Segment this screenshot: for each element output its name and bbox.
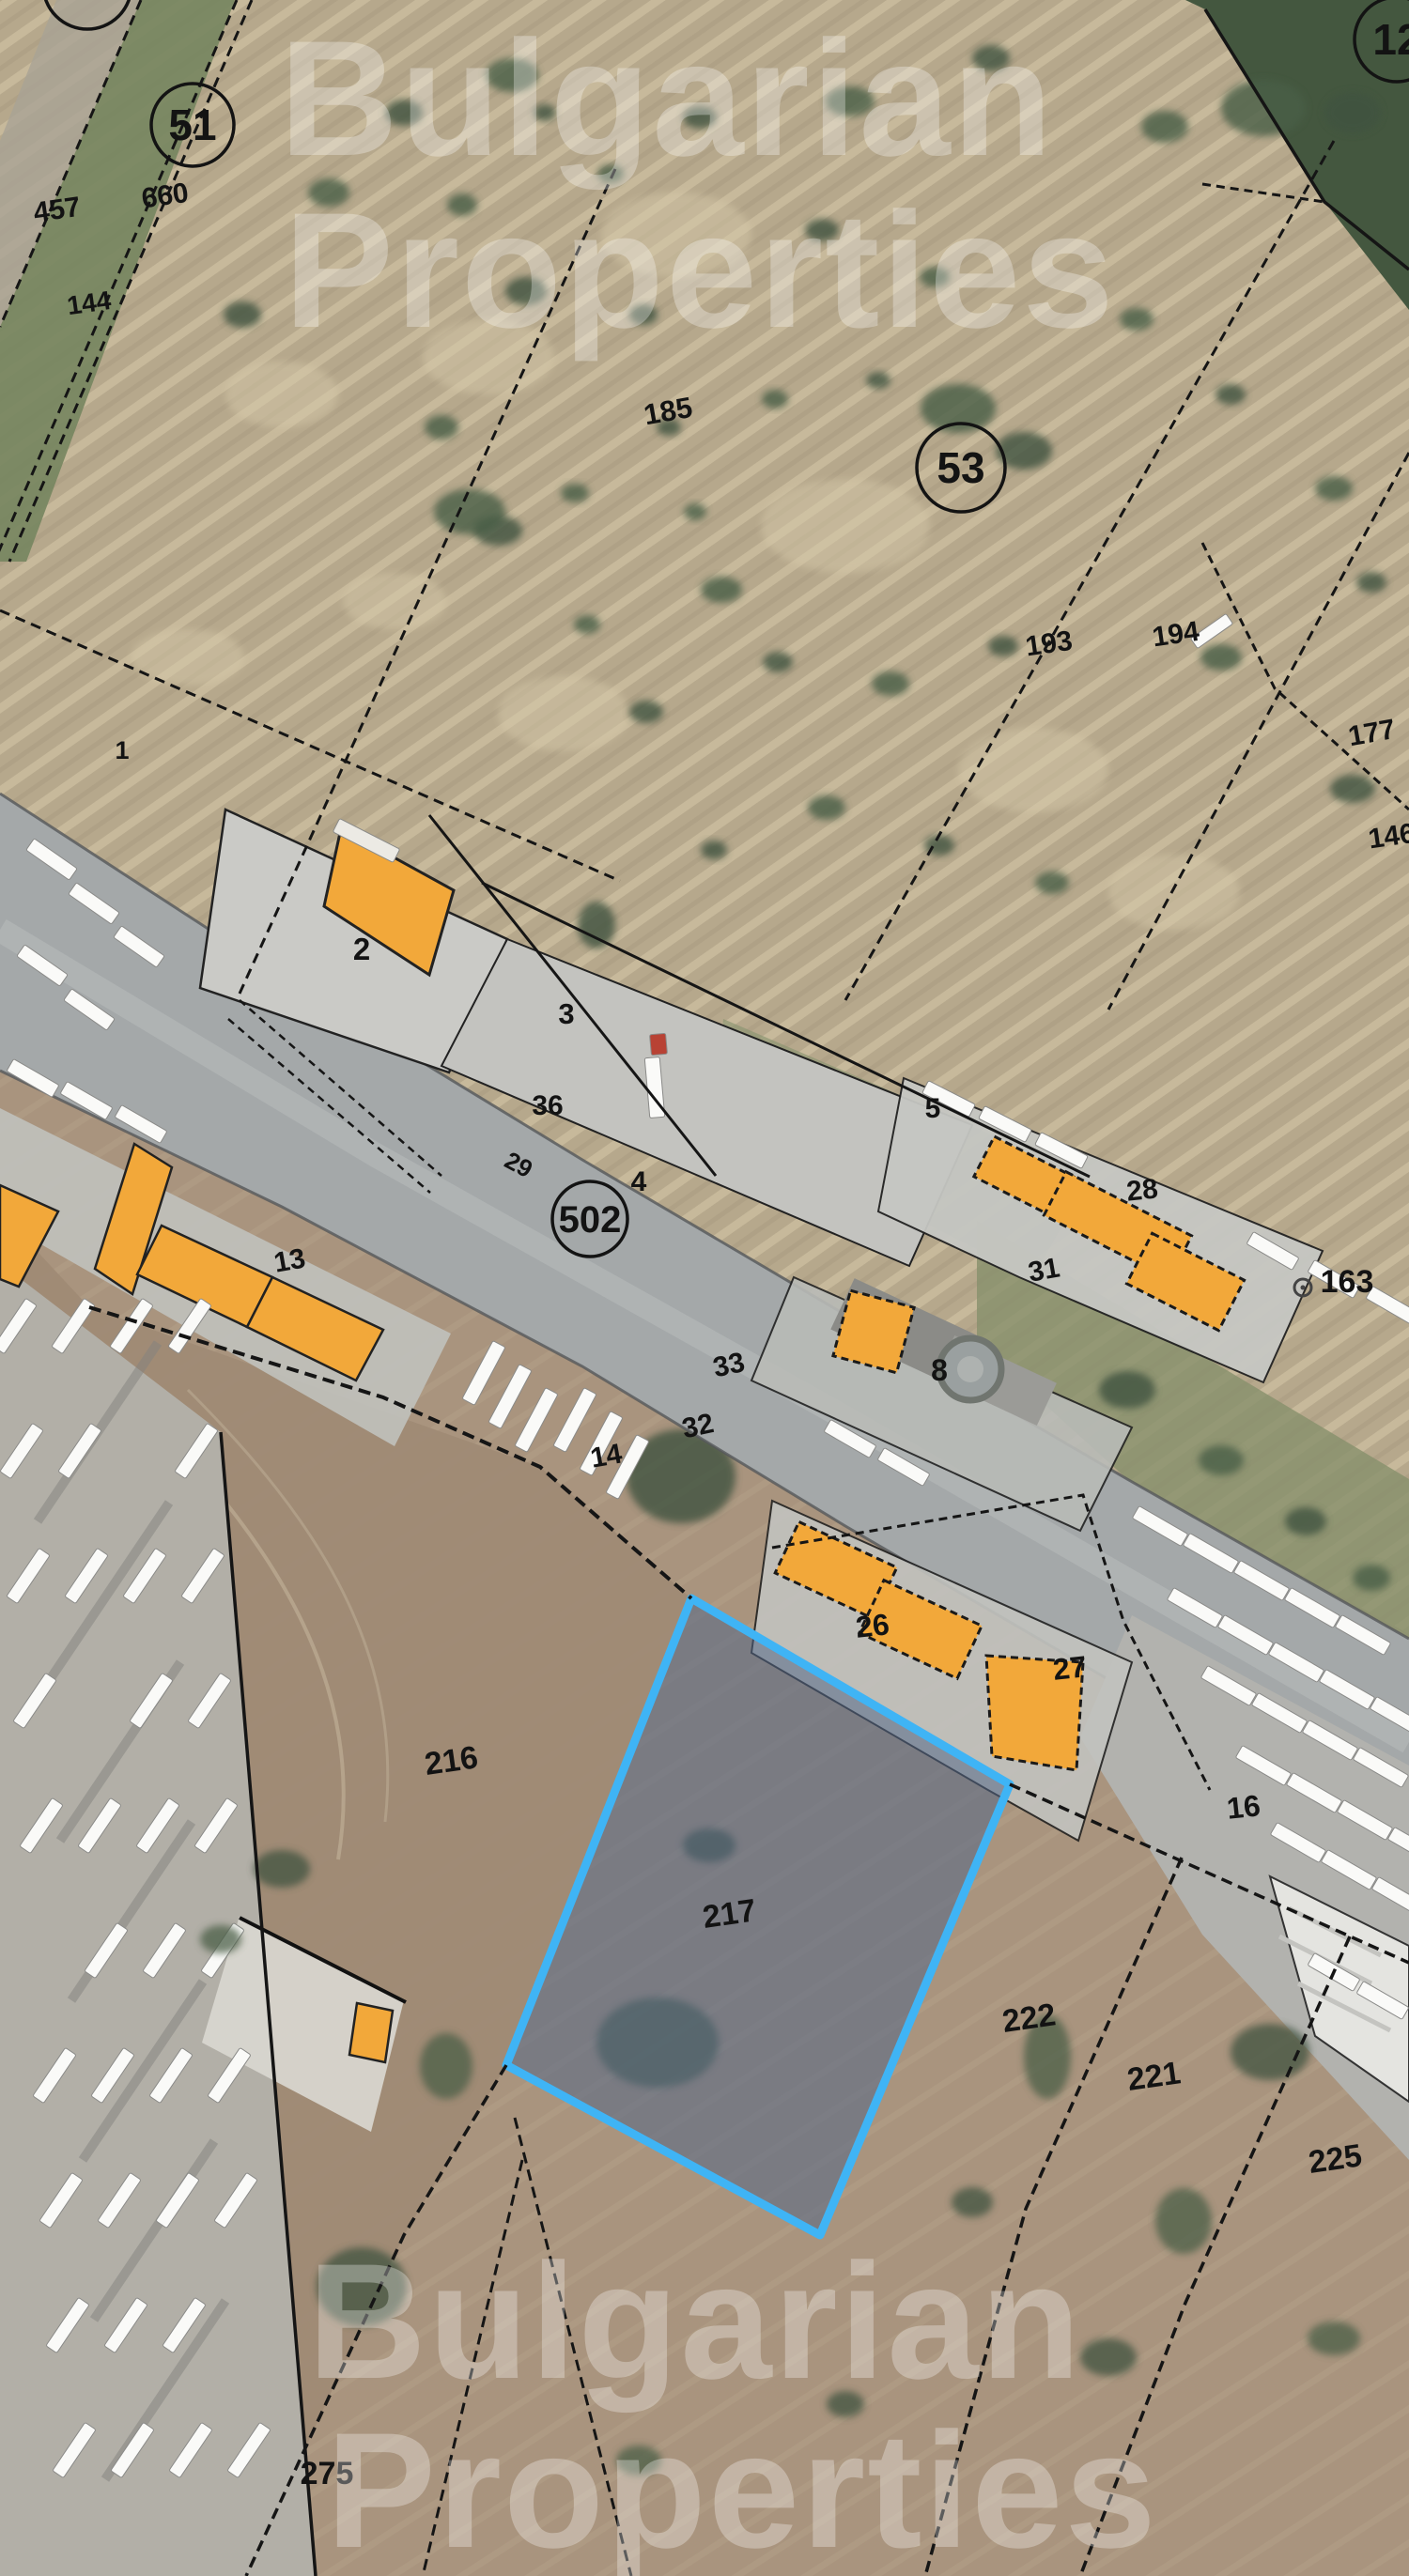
parcel-label-2: 2 <box>353 932 370 966</box>
tree-blob <box>200 1925 241 1953</box>
soil-patch <box>958 728 1108 812</box>
tree-blob <box>1120 308 1154 331</box>
satellite-map-svg: 4576601441851931941771461233652942831163… <box>0 0 1409 2576</box>
tree-blob <box>763 652 793 672</box>
tree-blob <box>425 415 458 440</box>
tree-blob <box>866 372 890 389</box>
soil-patch <box>498 676 629 751</box>
tree-blob <box>872 671 909 696</box>
tree-blob <box>1200 644 1242 671</box>
watermark-top: Bulgarian Properties <box>279 8 1115 362</box>
soil-patch <box>1108 855 1240 930</box>
parcel-label-33: 33 <box>710 1347 748 1383</box>
parcel-label-457: 457 <box>32 192 83 229</box>
tree-blob <box>561 484 589 502</box>
tree-blob <box>578 902 615 949</box>
parcel-label-216: 216 <box>423 1739 480 1782</box>
tree-blob <box>701 577 742 603</box>
svg-text:51: 51 <box>168 100 216 149</box>
parcel-label-36: 36 <box>532 1090 563 1121</box>
tree-blob <box>1155 2188 1212 2254</box>
parcel-label-5: 5 <box>925 1093 941 1124</box>
tree-blob <box>762 390 788 409</box>
watermark-bottom: Bulgarian Properties <box>307 2230 1157 2576</box>
tree-blob <box>1330 775 1375 803</box>
tree-blob <box>1035 872 1069 894</box>
tree-blob <box>434 489 505 534</box>
parcel-label-222: 222 <box>1000 1997 1058 2040</box>
tree-blob <box>1356 572 1386 593</box>
parcel-label-1: 1 <box>115 736 129 764</box>
parcel-label-27: 27 <box>1051 1649 1088 1687</box>
parcel-label-14: 14 <box>588 1438 625 1473</box>
tree-blob <box>1308 2321 1360 2355</box>
parcel-label-26: 26 <box>854 1607 890 1644</box>
watermark-bottom-line2: Properties <box>326 2399 1158 2576</box>
parcel-label-144: 144 <box>65 285 113 320</box>
parcel-label-16: 16 <box>1225 1788 1262 1826</box>
tree-blob <box>1099 1371 1155 1409</box>
tree-blob <box>684 503 706 520</box>
parcel-label-3: 3 <box>558 997 574 1030</box>
tree-blob <box>1285 1507 1326 1535</box>
tree-blob <box>420 2033 472 2099</box>
svg-text:53: 53 <box>937 443 984 492</box>
parcel-label-146: 146 <box>1367 818 1409 856</box>
tree-blob <box>921 384 996 433</box>
tree-blob <box>1080 2338 1137 2376</box>
tree-blob <box>1199 1445 1244 1475</box>
svg-text:12: 12 <box>1372 15 1409 64</box>
watermark-top-line2: Properties <box>284 179 1116 362</box>
tree-blob <box>701 841 727 859</box>
svg-text:502: 502 <box>559 1199 622 1241</box>
soil-patch <box>132 629 244 686</box>
parcel-label-32: 32 <box>679 1408 717 1444</box>
tree-blob <box>574 615 600 634</box>
parcel-label-193: 193 <box>1024 625 1075 663</box>
building-small-south <box>349 2003 393 2062</box>
tree-blob <box>1215 384 1246 405</box>
parcel-label-225: 225 <box>1307 2137 1364 2181</box>
parcel-label-163: 163 <box>1321 1264 1374 1300</box>
parcel-label-8: 8 <box>931 1353 948 1387</box>
tree-blob <box>1315 476 1353 501</box>
parcel-label-660: 660 <box>140 177 191 215</box>
tree-blob <box>1141 111 1188 143</box>
tree-blob <box>952 2187 993 2217</box>
soil-patch <box>225 362 338 427</box>
soil-patch <box>343 573 446 629</box>
tree-blob <box>1353 1565 1390 1591</box>
parcel-label-13: 13 <box>271 1242 308 1278</box>
tree-blob <box>254 1850 310 1888</box>
parcel-label-194: 194 <box>1151 616 1201 654</box>
parcel-label-221: 221 <box>1125 2055 1183 2098</box>
watermark-top-line1: Bulgarian <box>279 8 1054 191</box>
parcel-label-31: 31 <box>1026 1252 1062 1288</box>
tree-blob <box>1221 80 1306 136</box>
tree-blob <box>808 795 845 820</box>
soil-patch <box>761 479 930 573</box>
cadastral-map[interactable]: 4576601441851931941771461233652942831163… <box>0 0 1409 2576</box>
parcel-label-4: 4 <box>631 1166 647 1197</box>
tree-blob <box>1324 92 1381 133</box>
parcel-label-217: 217 <box>701 1892 758 1936</box>
tree-blob <box>629 701 663 723</box>
parcel-label-28: 28 <box>1125 1173 1160 1207</box>
truck <box>650 1033 668 1055</box>
tree-blob <box>224 301 261 328</box>
watermark-bottom-line1: Bulgarian <box>307 2230 1082 2414</box>
tree-blob <box>988 636 1018 656</box>
